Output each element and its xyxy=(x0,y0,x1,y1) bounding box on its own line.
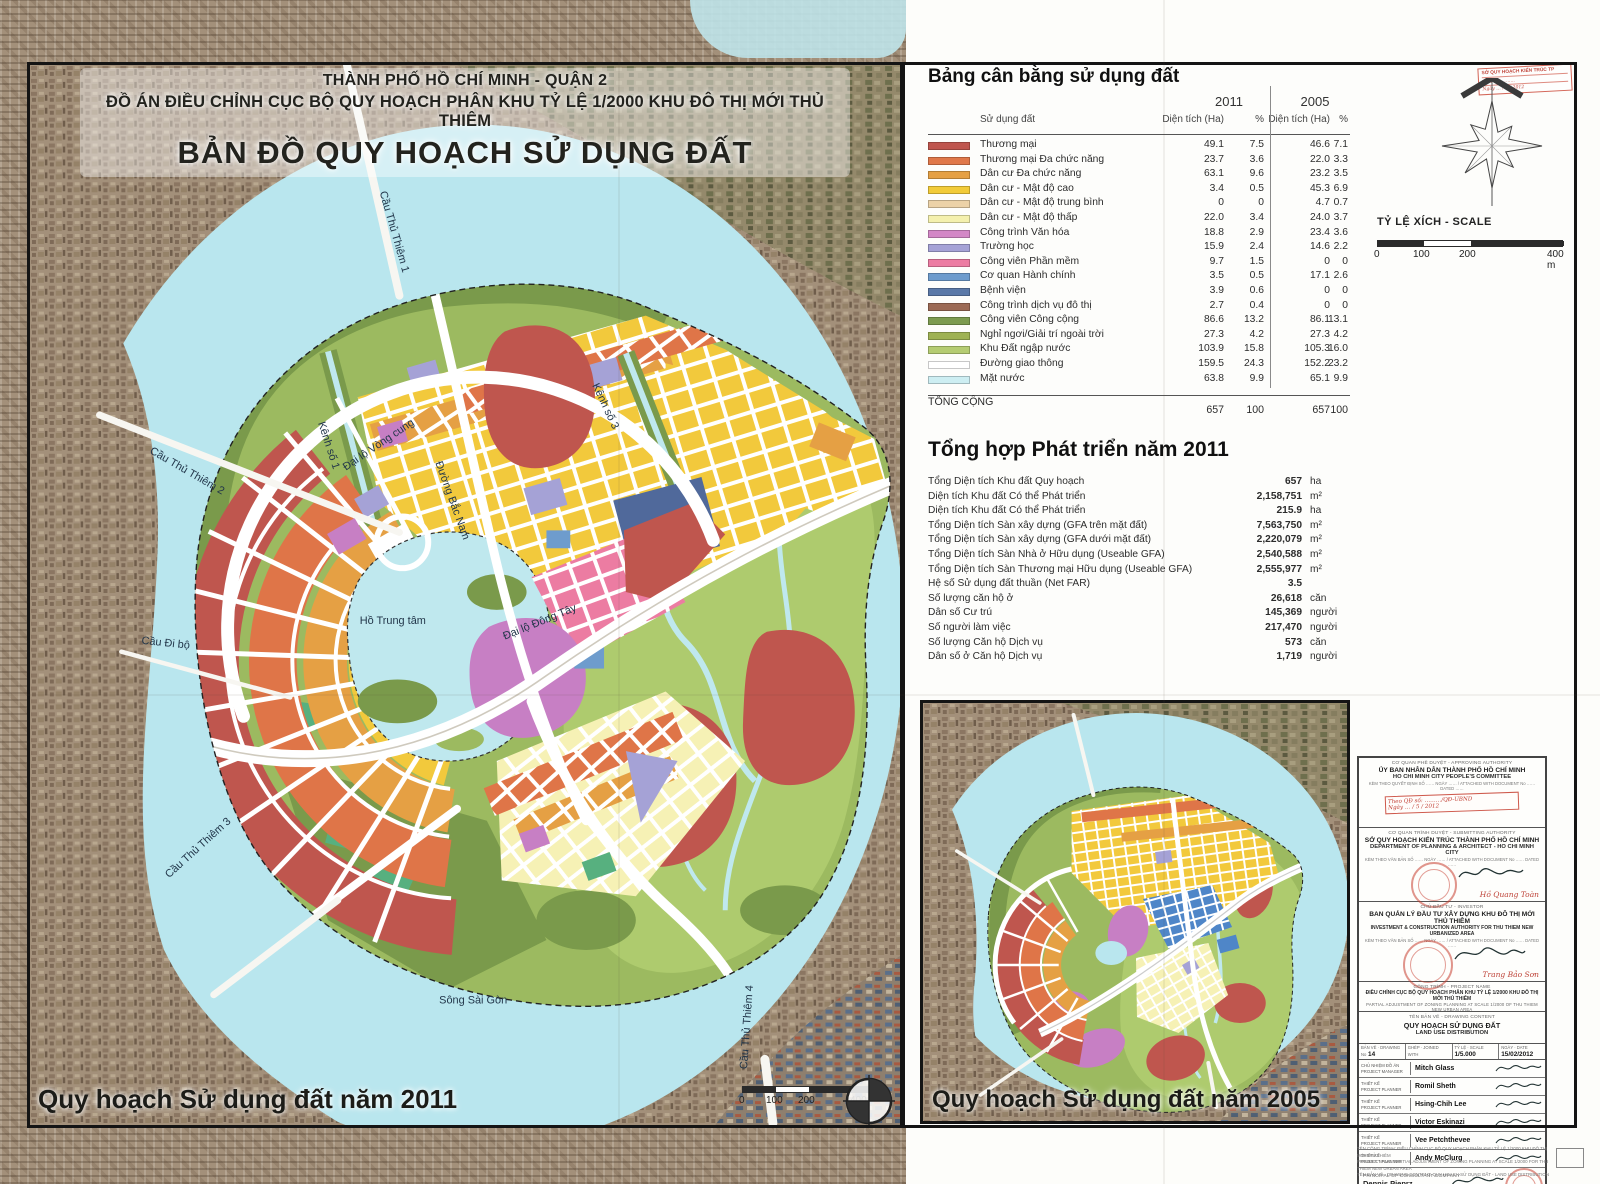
map-title-banner: THÀNH PHỐ HỒ CHÍ MINH - QUẬN 2 ĐỒ ÁN ĐIỀ… xyxy=(80,68,850,177)
org-name-vn: SỞ QUY HOẠCH KIẾN TRÚC THÀNH PHỐ HỒ CHÍ … xyxy=(1363,837,1541,844)
summary-label: Số người làm việc xyxy=(928,622,1011,633)
summary-value: 7,563,750 xyxy=(1178,520,1302,531)
land-use-row: Công viên Phần mềm 9.7 1.5 0 0 xyxy=(928,256,1350,271)
summary-row: Tổng Diện tích Sàn xây dựng (GFA dưới mặ… xyxy=(928,534,1350,549)
land-use-color-swatch xyxy=(928,200,970,208)
land-use-label: Cơ quan Hành chính xyxy=(980,270,1075,281)
summary-value: 2,555,977 xyxy=(1178,564,1302,575)
drawing-info-row: BẢN VẼ · DRAWING No 14 GHÉP · JOINED WIT… xyxy=(1359,1044,1545,1060)
investor-section: CHỦ ĐẦU TƯ - INVESTOR BAN QUẢN LÝ ĐẦU TƯ… xyxy=(1359,902,1545,982)
pct-2005: 2.2 xyxy=(1318,241,1348,252)
pct-2005: 3.3 xyxy=(1318,154,1348,165)
summary-unit: người xyxy=(1310,607,1337,618)
summary-row: Dân số ở Căn hộ Dịch vụ 1,719 người xyxy=(928,651,1350,666)
pct-2005: 16.0 xyxy=(1318,343,1348,354)
staff-role: THIẾT KẾPROJECT PLANNER xyxy=(1359,1134,1411,1146)
main-map-2011: Cầu Thủ Thiêm 1 Cầu Thủ Thiêm 2 Cầu Đi b… xyxy=(27,62,903,1128)
header-rule xyxy=(928,134,1350,135)
summary-value: 26,618 xyxy=(1178,593,1302,604)
land-use-color-swatch xyxy=(928,244,970,252)
title-block: CƠ QUAN PHÊ DUYỆT - APPROVING AUTHORITY … xyxy=(1357,756,1547,1184)
project-name-section: CÔNG TRÌNH - PROJECT NAME ĐIỀU CHỈNH CỤC… xyxy=(1359,982,1545,1012)
pct-2005: 3.6 xyxy=(1318,227,1348,238)
fine-print-line: PROJECT NAME: PARTIAL ADJUSTMENT OF ZONI… xyxy=(1357,1159,1557,1172)
land-use-row: Trường học 15.9 2.4 14.6 2.2 xyxy=(928,241,1350,256)
drawing-name-vn: QUY HOẠCH SỬ DỤNG ĐẤT xyxy=(1363,1021,1541,1030)
land-use-color-swatch xyxy=(928,186,970,194)
land-use-label: Công trình dịch vụ đô thị xyxy=(980,300,1092,311)
land-use-color-swatch xyxy=(928,273,970,281)
attach-note: KÈM THEO QUYẾT ĐỊNH SỐ …… NGÀY …… / ATTA… xyxy=(1363,781,1541,791)
summary-unit: m² xyxy=(1310,564,1322,575)
land-use-label: Trường học xyxy=(980,241,1034,252)
pct-2005: 0 xyxy=(1318,300,1348,311)
joined-with-cell: GHÉP · JOINED WITH xyxy=(1406,1044,1453,1059)
land-use-row: Dân cư - Mật độ trung bình 0 0 4.7 0.7 xyxy=(928,197,1350,212)
staff-role: THIẾT KẾPROJECT PLANNER xyxy=(1359,1080,1411,1092)
caption-2005: Quy hoạch Sử dụng đất năm 2005 xyxy=(932,1086,1320,1114)
summary-value: 217,470 xyxy=(1178,622,1302,633)
summary-row: Diện tích Khu đất Có thể Phát triển 215.… xyxy=(928,505,1350,520)
pct-2005: 0 xyxy=(1318,256,1348,267)
summary-unit: m² xyxy=(1310,534,1322,545)
signature xyxy=(1493,1061,1545,1077)
staff-name: Vee Petchthevee xyxy=(1411,1137,1493,1144)
label-song-sai-gon: Sông Sài Gòn xyxy=(439,995,507,1007)
summary-label: Diện tích Khu đất Có thể Phát triển xyxy=(928,491,1085,502)
staff-role: THIẾT KẾPROJECT PLANNER xyxy=(1359,1098,1411,1110)
land-use-row: Dân cư - Mật độ cao 3.4 0.5 45.3 6.9 xyxy=(928,183,1350,198)
land-use-label: Thương mại xyxy=(980,139,1037,150)
section-caption: CƠ QUAN TRÌNH DUYỆT - SUBMITTING AUTHORI… xyxy=(1363,831,1541,836)
summary-row: Tổng Diện tích Sàn Thương mại Hữu dụng (… xyxy=(928,564,1350,579)
land-use-row: Thương mại 49.1 7.5 46.6 7.1 xyxy=(928,139,1350,154)
land-use-color-swatch xyxy=(928,142,970,150)
land-use-row: Cơ quan Hành chính 3.5 0.5 17.1 2.6 xyxy=(928,270,1350,285)
revision-box xyxy=(1556,1148,1584,1168)
year-2011-header: 2011 xyxy=(1194,94,1264,109)
scale-cell: TỶ LỆ · SCALE 1/5.000 xyxy=(1453,1044,1500,1059)
land-use-label: Bệnh viện xyxy=(980,285,1026,296)
summary-value: 573 xyxy=(1178,637,1302,648)
org-name-en: HO CHI MINH CITY PEOPLE'S COMMITTEE xyxy=(1363,774,1541,780)
drawing-date: 15/02/2012 xyxy=(1501,1051,1533,1058)
summary-unit: m² xyxy=(1310,520,1322,531)
land-use-label: Đường giao thông xyxy=(980,358,1064,369)
fine-print: TÊN CÔNG TRÌNH: ĐIỀU CHỈNH CỤC BỘ QUY HO… xyxy=(1357,1146,1557,1179)
development-summary: Tổng hợp Phát triển năm 2011 Tổng Diện t… xyxy=(928,432,1350,666)
summary-label: Dân số Cư trú xyxy=(928,607,992,618)
land-use-label: Nghỉ ngơi/Giải trí ngoài trời xyxy=(980,329,1104,340)
summary-label: Tổng Diện tích Sàn Nhà ở Hữu dụng (Useab… xyxy=(928,549,1165,560)
drawing-number-cell: BẢN VẼ · DRAWING No 14 xyxy=(1359,1044,1406,1059)
org-name-vn: ỦY BAN NHÂN DÂN THÀNH PHỐ HỒ CHÍ MINH xyxy=(1363,767,1541,774)
land-use-row: Dân cư - Mật độ thấp 22.0 3.4 24.0 3.7 xyxy=(928,212,1350,227)
col-land-use: Sử dụng đất xyxy=(980,114,1035,125)
summary-unit: m² xyxy=(1310,491,1322,502)
land-use-row: Công trình dịch vụ đô thị 2.7 0.4 0 0 xyxy=(928,300,1350,315)
signature xyxy=(1455,862,1525,884)
approving-authority-section: CƠ QUAN PHÊ DUYỆT - APPROVING AUTHORITY … xyxy=(1359,758,1545,828)
land-use-color-swatch xyxy=(928,157,970,165)
submitting-authority-section: CƠ QUAN TRÌNH DUYỆT - SUBMITTING AUTHORI… xyxy=(1359,828,1545,902)
summary-label: Tổng Diện tích Sàn xây dựng (GFA dưới mặ… xyxy=(928,534,1151,545)
summary-row: Số lượng căn hộ ở 26,618 căn xyxy=(928,593,1350,608)
north-arrow-compass-rose xyxy=(1412,78,1572,208)
land-use-row: Đường giao thông 159.5 24.3 152.2 23.2 xyxy=(928,358,1350,373)
land-use-color-swatch xyxy=(928,332,970,340)
main-map-svg: Cầu Thủ Thiêm 1 Cầu Thủ Thiêm 2 Cầu Đi b… xyxy=(30,65,900,1125)
land-use-row: Công trình Văn hóa 18.8 2.9 23.4 3.6 xyxy=(928,227,1350,242)
principal-name: Dennis Pieprz xyxy=(1363,1179,1460,1184)
pct-2005: 3.5 xyxy=(1318,168,1348,179)
staff-row: THIẾT KẾPROJECT PLANNER Victor Eskinazi xyxy=(1359,1114,1545,1132)
summary-label: Tổng Diện tích Sàn Thương mại Hữu dụng (… xyxy=(928,564,1192,575)
total-pct-2005: 100 xyxy=(1318,404,1348,416)
land-use-color-swatch xyxy=(928,230,970,238)
summary-value: 215.9 xyxy=(1178,505,1302,516)
org-name-vn: BAN QUẢN LÝ ĐẦU TƯ XÂY DỰNG KHU ĐÔ THỊ M… xyxy=(1363,911,1541,925)
land-use-label: Công viên Công cộng xyxy=(980,314,1079,325)
summary-value: 2,158,751 xyxy=(1178,491,1302,502)
summary-label: Hệ số Sử dụng đất thuần (Net FAR) xyxy=(928,578,1090,589)
land-use-label: Công viên Phần mềm xyxy=(980,256,1079,267)
staff-row: CHỦ NHIỆM ĐỒ ÁNPROJECT MANAGER Mitch Gla… xyxy=(1359,1060,1545,1078)
summary-row: Tổng Diện tích Sàn Nhà ở Hữu dụng (Useab… xyxy=(928,549,1350,564)
signer-name: Hồ Quang Toàn xyxy=(1480,890,1539,899)
summary-rows: Tổng Diện tích Khu đất Quy hoạch 657 ha … xyxy=(928,476,1350,666)
north-compass-circle xyxy=(842,1074,896,1128)
land-use-label: Dân cư - Mật độ thấp xyxy=(980,212,1077,223)
label-ho-trung-tam: Hồ Trung tâm xyxy=(360,615,426,627)
signature xyxy=(1493,1079,1545,1095)
land-use-row: Mặt nước 63.8 9.9 65.1 9.9 xyxy=(928,373,1350,388)
summary-row: Tổng Diện tích Khu đất Quy hoạch 657 ha xyxy=(928,476,1350,491)
summary-unit: người xyxy=(1310,622,1337,633)
project-name-vn: ĐIỀU CHỈNH CỤC BỘ QUY HOẠCH PHÂN KHU TỶ … xyxy=(1363,990,1541,1002)
land-use-label: Mặt nước xyxy=(980,373,1025,384)
land-use-row: Công viên Công cộng 86.6 13.2 86.1 13.1 xyxy=(928,314,1350,329)
pct-2005: 0.7 xyxy=(1318,197,1348,208)
land-use-row: Nghỉ ngơi/Giải trí ngoài trời 27.3 4.2 2… xyxy=(928,329,1350,344)
drawing-number: 14 xyxy=(1368,1051,1375,1058)
year-2005-header: 2005 xyxy=(1280,94,1350,109)
pct-2005: 13.1 xyxy=(1318,314,1348,325)
scale-tick: 100 xyxy=(1413,249,1430,260)
summary-unit: căn xyxy=(1310,637,1326,648)
summary-row: Diện tích Khu đất Có thể Phát triển 2,15… xyxy=(928,491,1350,506)
signer-name: Trang Bảo Sơn xyxy=(1483,970,1539,979)
total-label: TỔNG CỘNG xyxy=(928,396,993,408)
summary-unit: m² xyxy=(1310,549,1322,560)
land-use-color-swatch xyxy=(928,317,970,325)
summary-label: Tổng Diện tích Sàn xây dựng (GFA trên mặ… xyxy=(928,520,1147,531)
scale-heading: TỶ LỆ XÍCH - SCALE xyxy=(1377,216,1492,228)
scale-tick: 0 xyxy=(739,1095,745,1106)
summary-row: Số người làm việc 217,470 người xyxy=(928,622,1350,637)
col-pct-2005: % xyxy=(1318,114,1348,125)
summary-value: 1,719 xyxy=(1178,651,1302,662)
summary-unit: người xyxy=(1310,651,1337,662)
pct-2005: 0 xyxy=(1318,285,1348,296)
land-use-label: Thương mại Đa chức năng xyxy=(980,154,1104,165)
top-scalebar: 0 100 200 400 m xyxy=(1377,240,1563,261)
caption-2011: Quy hoạch Sử dụng đất năm 2011 xyxy=(38,1084,457,1115)
summary-value: 145,369 xyxy=(1178,607,1302,618)
summary-unit: ha xyxy=(1310,476,1321,487)
signature xyxy=(1493,1097,1545,1113)
land-use-color-swatch xyxy=(928,259,970,267)
river-glimpse-top xyxy=(690,0,906,58)
org-name-en: INVESTMENT & CONSTRUCTION AUTHORITY FOR … xyxy=(1363,925,1541,937)
fold-line xyxy=(0,694,1600,696)
land-use-row: Bệnh viện 3.9 0.6 0 0 xyxy=(928,285,1350,300)
land-use-color-swatch xyxy=(928,346,970,354)
total-row: TỔNG CỘNG 657 100 657 100 xyxy=(928,395,1350,422)
drawing-name-en: LAND USE DISTRIBUTION xyxy=(1363,1030,1541,1036)
legend-heading: Bảng cân bằng sử dụng đất xyxy=(928,66,1350,88)
pct-2005: 2.6 xyxy=(1318,270,1348,281)
summary-label: Diện tích Khu đất Có thể Phát triển xyxy=(928,505,1085,516)
land-use-row: Thương mại Đa chức năng 23.7 3.6 22.0 3.… xyxy=(928,154,1350,169)
scale-tick: 200 xyxy=(798,1095,815,1106)
pct-2005: 23.2 xyxy=(1318,358,1348,369)
summary-label: Dân số ở Căn hộ Dịch vụ xyxy=(928,651,1042,662)
summary-row: Số lượng Căn hộ Dịch vụ 573 căn xyxy=(928,637,1350,652)
map-2005 xyxy=(920,700,1350,1124)
pct-2005: 6.9 xyxy=(1318,183,1348,194)
summary-label: Số lượng căn hộ ở xyxy=(928,593,1013,604)
project-name-en: PARTIAL ADJUSTMENT OF ZONING PLANNING AT… xyxy=(1363,1002,1541,1012)
summary-label: Tổng Diện tích Khu đất Quy hoạch xyxy=(928,476,1084,487)
land-use-color-swatch xyxy=(928,171,970,179)
land-use-label: Dân cư - Mật độ cao xyxy=(980,183,1074,194)
pct-2005: 4.2 xyxy=(1318,329,1348,340)
date-cell: NGÀY · DATE 15/02/2012 xyxy=(1499,1044,1545,1059)
land-use-color-swatch xyxy=(928,376,970,384)
scale-tick: 200 xyxy=(1459,249,1476,260)
fold-line xyxy=(1163,0,1165,1184)
fold-line xyxy=(618,0,620,1184)
scale-tick: 0 xyxy=(1374,249,1380,260)
pct-2005: 7.1 xyxy=(1318,139,1348,150)
land-use-rows: Thương mại 49.1 7.5 46.6 7.1 Thương mại … xyxy=(928,139,1350,387)
fine-print-line: TÊN CÔNG TRÌNH: ĐIỀU CHỈNH CỤC BỘ QUY HO… xyxy=(1357,1146,1557,1159)
staff-name: Hsing-Chih Lee xyxy=(1411,1101,1493,1108)
approval-stamp: Theo QĐ số: ………/QĐ-UBND Ngày … / 5 / 201… xyxy=(1385,792,1520,815)
drawing-scale: 1/5.000 xyxy=(1455,1051,1476,1058)
org-name-en: DEPARTMENT OF PLANNING & ARCHITECT - HO … xyxy=(1363,844,1541,856)
land-use-label: Công trình Văn hóa xyxy=(980,227,1069,238)
section-caption: CHỦ ĐẦU TƯ - INVESTOR xyxy=(1363,905,1541,910)
summary-value: 3.5 xyxy=(1178,578,1302,589)
signature xyxy=(1493,1115,1545,1131)
land-use-color-swatch xyxy=(928,215,970,223)
staff-name: Romil Sheth xyxy=(1411,1083,1493,1090)
staff-role: THIẾT KẾPROJECT PLANNER xyxy=(1359,1116,1411,1128)
summary-unit: ha xyxy=(1310,505,1321,516)
land-use-color-swatch xyxy=(928,303,970,311)
summary-unit: căn xyxy=(1310,593,1326,604)
staff-row: THIẾT KẾPROJECT PLANNER Romil Sheth xyxy=(1359,1078,1545,1096)
fine-print-line: TÊN BẢN VẼ - DRAWING CONTENT: QUY HOẠCH … xyxy=(1357,1172,1557,1179)
staff-role: CHỦ NHIỆM ĐỒ ÁNPROJECT MANAGER xyxy=(1359,1062,1411,1074)
signature xyxy=(1451,942,1527,966)
land-use-label: Dân cư - Mật độ trung bình xyxy=(980,197,1104,208)
title-map: BẢN ĐỒ QUY HOẠCH SỬ DỤNG ĐẤT xyxy=(80,135,850,171)
land-use-balance-table: Bảng cân bằng sử dụng đất 2011 2005 Sử d… xyxy=(928,66,1350,422)
land-use-color-swatch xyxy=(928,288,970,296)
pct-2005: 9.9 xyxy=(1318,373,1348,384)
scale-tick: 100 xyxy=(766,1095,783,1106)
title-city: THÀNH PHỐ HỒ CHÍ MINH - QUẬN 2 xyxy=(80,72,850,90)
drawing-content-section: TÊN BẢN VẼ - DRAWING CONTENT QUY HOẠCH S… xyxy=(1359,1012,1545,1044)
land-use-label: Khu Đất ngập nước xyxy=(980,343,1070,354)
summary-value: 2,220,079 xyxy=(1178,534,1302,545)
land-use-label: Dân cư Đa chức năng xyxy=(980,168,1081,179)
summary-heading: Tổng hợp Phát triển năm 2011 xyxy=(928,438,1350,462)
summary-row: Dân số Cư trú 145,369 người xyxy=(928,607,1350,622)
summary-label: Số lượng Căn hộ Dịch vụ xyxy=(928,637,1043,648)
staff-name: Mitch Glass xyxy=(1411,1065,1493,1072)
title-project: ĐỒ ÁN ĐIỀU CHỈNH CỤC BỘ QUY HOẠCH PHÂN K… xyxy=(80,93,850,131)
land-use-color-swatch xyxy=(928,361,970,369)
land-use-row: Dân cư Đa chức năng 63.1 9.6 23.2 3.5 xyxy=(928,168,1350,183)
staff-row: THIẾT KẾPROJECT PLANNER Hsing-Chih Lee xyxy=(1359,1096,1545,1114)
map-2005-svg xyxy=(923,703,1347,1121)
section-caption: TÊN BẢN VẼ - DRAWING CONTENT xyxy=(1363,1015,1541,1020)
staff-name: Victor Eskinazi xyxy=(1411,1119,1493,1126)
summary-row: Hệ số Sử dụng đất thuần (Net FAR) 3.5 xyxy=(928,578,1350,593)
summary-value: 2,540,588 xyxy=(1178,549,1302,560)
drawing-sheet: Cầu Thủ Thiêm 1 Cầu Thủ Thiêm 2 Cầu Đi b… xyxy=(0,0,1600,1184)
summary-row: Tổng Diện tích Sàn xây dựng (GFA trên mặ… xyxy=(928,520,1350,535)
scale-tick: 400 m xyxy=(1547,249,1564,271)
summary-value: 657 xyxy=(1178,476,1302,487)
land-use-row: Khu Đất ngập nước 103.9 15.8 105.3 16.0 xyxy=(928,343,1350,358)
section-caption: CƠ QUAN PHÊ DUYỆT - APPROVING AUTHORITY xyxy=(1363,761,1541,766)
pct-2005: 3.7 xyxy=(1318,212,1348,223)
